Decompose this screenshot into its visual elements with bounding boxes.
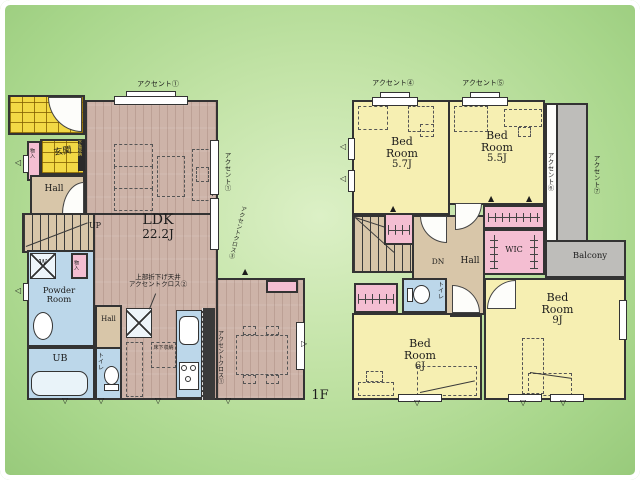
furniture-outline: [454, 106, 488, 132]
furniture-outline: [358, 382, 394, 396]
closet-bed1: [384, 213, 414, 245]
window: [348, 138, 355, 160]
furniture-outline: [420, 124, 434, 137]
floor-plan: 玄関 下駄収納 物入 Hall UP W 物入 Powder Room UB H…: [0, 0, 640, 480]
vent-mark-icon: ▽: [520, 399, 526, 407]
bed4-label: Bed Room 9J: [520, 292, 595, 327]
window-frame: [380, 92, 410, 98]
hanger-rail-icon: [388, 223, 410, 237]
window-frame: [470, 92, 500, 98]
floor-2-plan: Balcony DN Hall WIC トイレ Bed Room: [0, 0, 640, 480]
window: [372, 97, 418, 106]
window: [619, 300, 627, 340]
closet-bed3: [354, 283, 398, 313]
stairs-dn-label: DN: [426, 258, 450, 266]
furniture-outline: [358, 106, 388, 130]
window: [348, 170, 355, 192]
vent-mark-icon: ▽: [414, 399, 420, 407]
vent-mark-icon: ▲: [526, 195, 532, 203]
hanger-rail-icon: [358, 292, 394, 306]
bed1-label: Bed Room 5.7J: [370, 136, 434, 171]
balcony-label: Balcony: [558, 252, 622, 261]
furniture-outline: [518, 127, 531, 137]
accent-label-right-outer-2f: アクセント⑦: [592, 143, 599, 205]
accent-label-top-left-2f: アクセント④: [362, 80, 424, 88]
closet-bed2: [483, 205, 545, 229]
vent-mark-icon: ◁: [340, 175, 346, 183]
vent-mark-icon: ▲: [390, 205, 396, 213]
hanger-rail-icon: [488, 211, 540, 224]
window: [550, 394, 584, 402]
furniture-outline: [504, 109, 542, 127]
balcony-upper: [556, 103, 588, 245]
wic-label: WIC: [498, 246, 530, 255]
vent-mark-icon: ▽: [560, 399, 566, 407]
vent-mark-icon: ▲: [488, 195, 494, 203]
window: [462, 97, 508, 106]
vent-mark-icon: ◁: [340, 143, 346, 151]
accent-label-top-right-2f: アクセント⑤: [452, 80, 514, 88]
toilet-2f-label: トイレ: [436, 281, 442, 299]
furniture-outline: [366, 371, 383, 382]
toilet-2f-icon: [413, 285, 430, 304]
accent-label-right-inner-2f: アクセント⑥: [546, 140, 553, 202]
